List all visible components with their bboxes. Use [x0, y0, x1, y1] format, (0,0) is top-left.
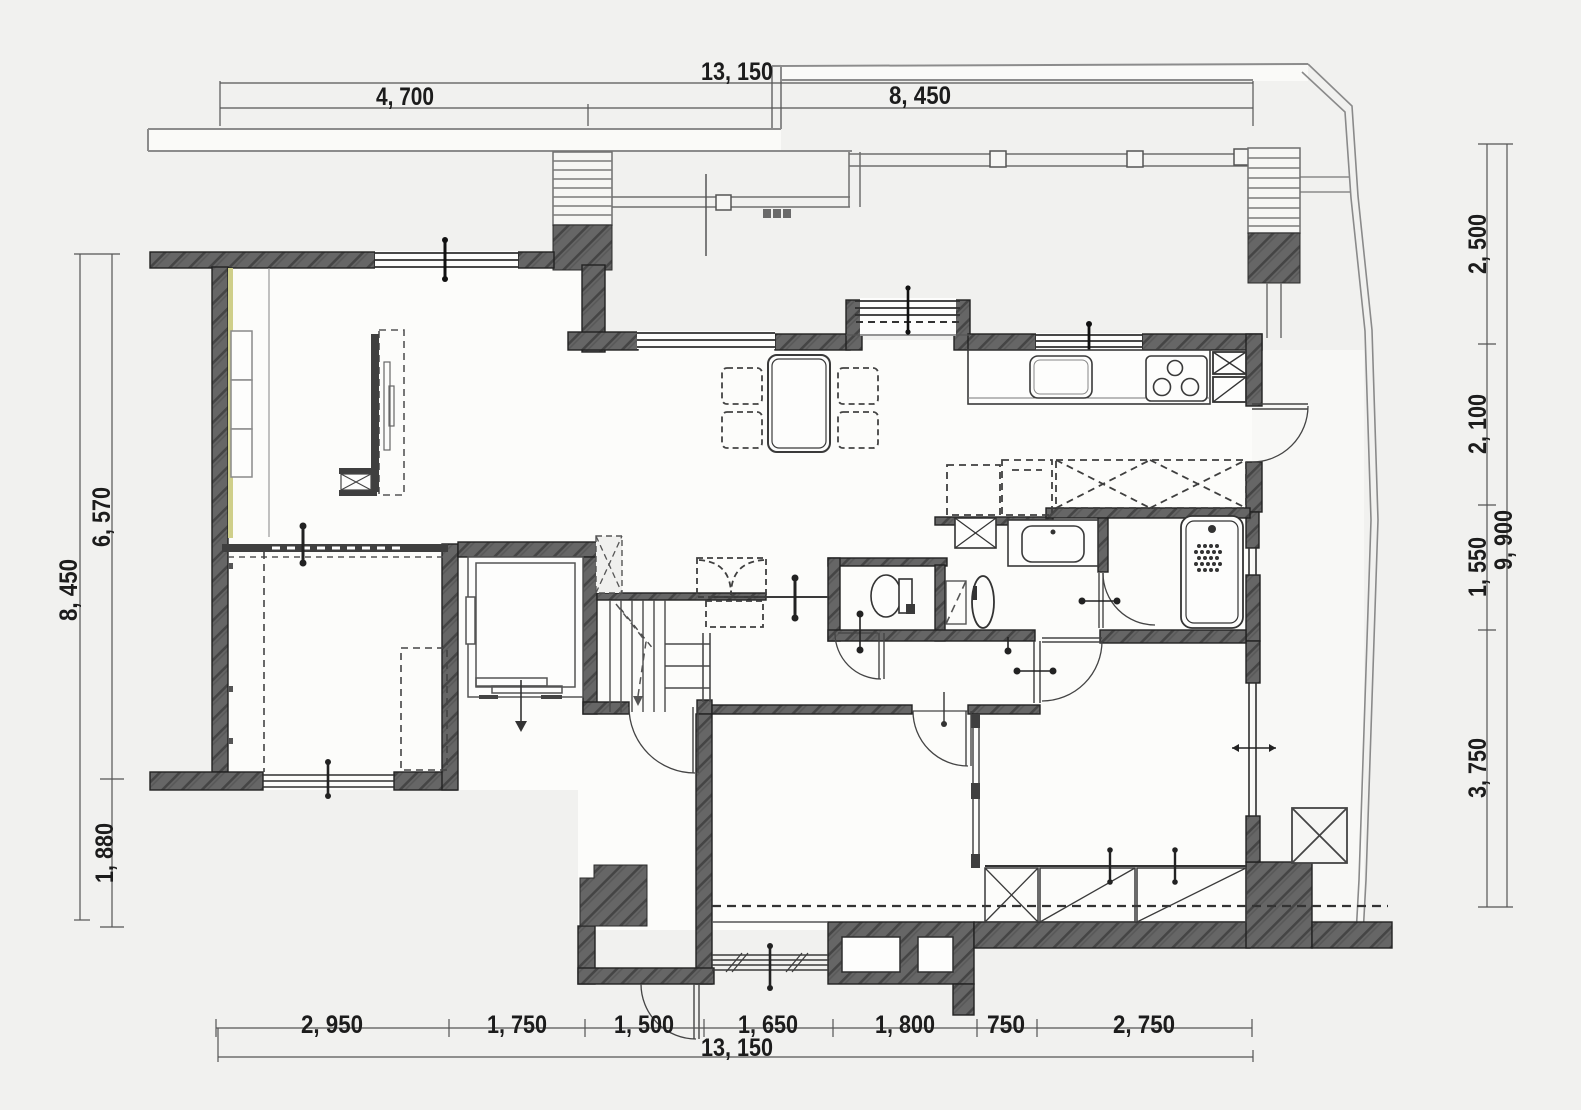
svg-text:13, 150: 13, 150: [701, 58, 773, 86]
svg-text:13, 150: 13, 150: [701, 1034, 773, 1062]
svg-text:2, 950: 2, 950: [301, 1011, 363, 1039]
svg-text:3, 750: 3, 750: [1464, 738, 1492, 798]
svg-text:1, 500: 1, 500: [614, 1011, 674, 1039]
svg-text:2, 100: 2, 100: [1464, 394, 1492, 454]
svg-text:2, 750: 2, 750: [1113, 1011, 1175, 1039]
svg-text:1, 880: 1, 880: [91, 823, 119, 883]
svg-text:1, 800: 1, 800: [875, 1011, 935, 1039]
svg-text:1, 550: 1, 550: [1464, 537, 1492, 597]
svg-text:8, 450: 8, 450: [889, 82, 951, 110]
svg-text:4, 700: 4, 700: [376, 83, 434, 111]
svg-text:1, 750: 1, 750: [487, 1011, 547, 1039]
svg-text:6, 570: 6, 570: [88, 487, 116, 547]
svg-text:2, 500: 2, 500: [1464, 214, 1492, 274]
svg-text:750: 750: [987, 1011, 1025, 1039]
svg-text:9, 900: 9, 900: [1490, 510, 1518, 570]
svg-text:8, 450: 8, 450: [55, 559, 83, 621]
